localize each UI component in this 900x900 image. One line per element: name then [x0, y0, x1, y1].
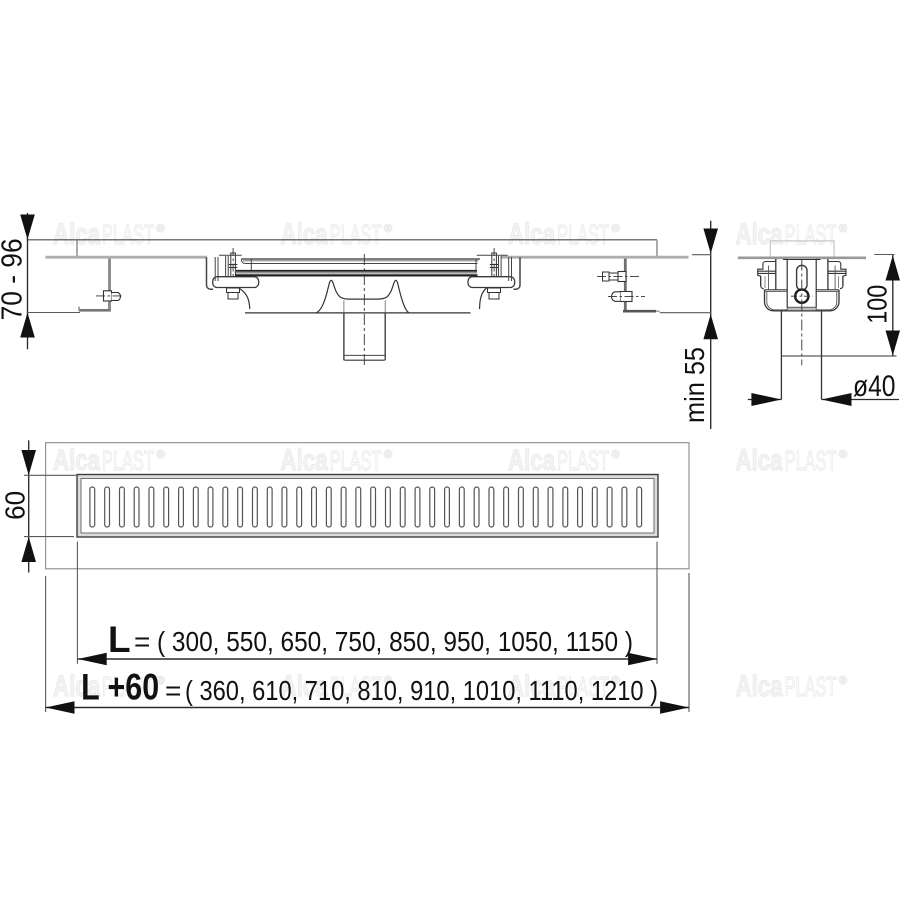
- svg-text:=: =: [165, 675, 181, 706]
- svg-text:®: ®: [157, 223, 165, 235]
- svg-text:min 55: min 55: [679, 347, 710, 423]
- svg-text:L: L: [108, 619, 131, 660]
- svg-text:( 300, 550, 650, 750, 850, 950: ( 300, 550, 650, 750, 850, 950, 1050, 11…: [157, 626, 633, 657]
- svg-text:100: 100: [862, 285, 893, 324]
- svg-text:60: 60: [0, 491, 31, 520]
- svg-text:PLAST: PLAST: [102, 219, 154, 250]
- svg-text:ø40: ø40: [853, 370, 896, 403]
- svg-text:L +60: L +60: [81, 667, 159, 708]
- svg-text:=: =: [134, 626, 150, 657]
- svg-text:70 - 96: 70 - 96: [0, 238, 28, 320]
- svg-text:( 360, 610, 710, 810, 910, 101: ( 360, 610, 710, 810, 910, 1010, 1110, 1…: [185, 675, 658, 706]
